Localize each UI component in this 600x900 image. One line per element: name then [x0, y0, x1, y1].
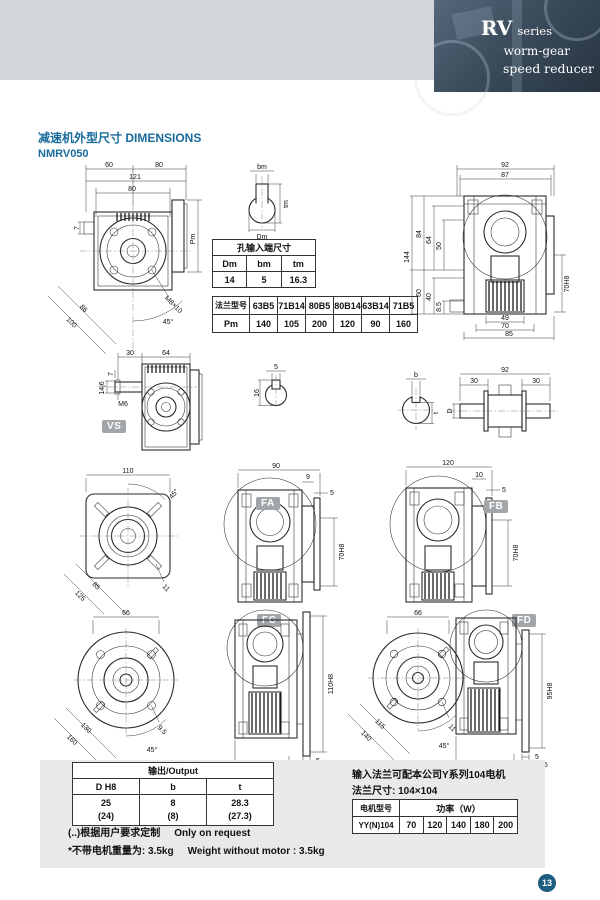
dim-label: 14j6 [99, 381, 106, 394]
output-value: 8 [140, 797, 206, 810]
bore-detail-drawing: bm tm Dm [228, 162, 294, 240]
dim-label: 64 [162, 350, 170, 357]
output-value-alt: (24) [73, 810, 139, 823]
page-title-dimensions: 减速机外型尺寸 DIMENSIONS [38, 131, 201, 147]
flange-pm-label: Pm [213, 315, 250, 333]
dim-label: 144 [404, 251, 411, 263]
double-shaft-drawing: 92 30 30 D [442, 365, 564, 445]
dim-label: 130 [79, 722, 92, 735]
dim-label: 70H8 [513, 545, 520, 562]
dim-label: bm [257, 164, 267, 171]
dim-label: 64 [426, 236, 433, 244]
dim-label: 9 [306, 474, 310, 481]
side-view-drawing: 92 87 144 84 64 50 60 40 8.5 70H8 [402, 160, 574, 342]
output-value-alt: (8) [140, 810, 206, 823]
flange-model: 63B14 [362, 297, 390, 315]
note-custom-zh: (..)根据用户要求定制 [68, 828, 160, 839]
fd-side-drawing: 95H8 5 14.5 72 [438, 604, 568, 776]
fb-side-drawing: 120 10 5 70H8 [384, 456, 529, 614]
flange-pm-value: 90 [362, 315, 390, 333]
dim-label: 110H8 [328, 674, 335, 694]
motor-power: 70 [400, 817, 424, 834]
dim-label: 11 [161, 583, 171, 593]
flange-model: 63B5 [250, 297, 278, 315]
motor-table: 电机型号 功率（W） YY(N)104 70 120 140 180 200 [352, 799, 518, 834]
dim-label: 120 [442, 460, 454, 467]
dim-label: 66 [414, 610, 422, 617]
dim-label: 60 [105, 162, 113, 169]
dim-label: 92 [501, 162, 509, 169]
note-weight-en: Weight without motor : 3.5kg [188, 846, 325, 857]
dim-label: 7 [108, 372, 115, 376]
note-weight: *不带电机重量为: 3.5kgWeight without motor : 3.… [68, 842, 325, 857]
tag-fb: FB [484, 500, 508, 513]
flange-model: 71B14 [278, 297, 306, 315]
output-value-cell: 28.3 (27.3) [207, 795, 274, 826]
front-view-drawing: 60 80 121 80 7 Pm 86 100 M8×10 45° [36, 160, 216, 356]
bore-table-title: 孔输入端尺寸 [213, 240, 316, 256]
flange-pm-value: 120 [334, 315, 362, 333]
dim-label: 45° [147, 746, 158, 754]
motor-power: 120 [423, 817, 447, 834]
fa-side-drawing: 90 9 5 70H8 [212, 460, 350, 612]
flange-row-label: 法兰型号 [213, 297, 250, 315]
photo-gear-shape [414, 40, 490, 116]
motor-power: 200 [494, 817, 518, 834]
key-detail-drawing: 5 16 [240, 363, 298, 415]
page-number-badge: 13 [538, 874, 556, 892]
note-custom-en: Only on request [174, 828, 250, 839]
header-photo: RV series worm-gear speed reducer [434, 0, 600, 92]
dim-label: 110 [122, 468, 133, 475]
dim-label: 87 [501, 172, 509, 179]
bore-col-header: Dm [213, 256, 247, 272]
dim-label: 10 [475, 472, 483, 479]
dim-label: 84 [416, 230, 423, 238]
note-custom: (..)根据用户要求定制Only on request [68, 824, 250, 839]
output-value: 28.3 [207, 797, 273, 810]
dim-label: 16 [254, 389, 261, 397]
bore-col-header: tm [281, 256, 315, 272]
motor-power: 180 [470, 817, 494, 834]
series-title-line1: RV series [481, 14, 596, 43]
dim-label: t [433, 412, 440, 414]
dim-label: 125 [73, 590, 86, 603]
dim-label: M8×10 [163, 295, 183, 315]
dim-label: 70H8 [339, 544, 346, 561]
tag-vs: VS [102, 420, 126, 433]
dim-label: 121 [129, 174, 141, 181]
dim-label: b [414, 372, 418, 379]
motor-model-header: 电机型号 [353, 800, 400, 817]
series-title-line2: worm-gear [481, 43, 596, 60]
motor-power: 140 [447, 817, 471, 834]
dim-label: 115 [373, 718, 386, 731]
dim-label: 90 [272, 463, 280, 470]
dim-label: 49 [501, 315, 509, 322]
note-weight-zh: *不带电机重量为: 3.5kg [68, 846, 174, 857]
output-value-cell: 8 (8) [140, 795, 207, 826]
dim-label: 92 [501, 367, 509, 374]
motor-model: YY(N)104 [353, 817, 400, 834]
tag-fa: FA [256, 497, 280, 510]
bore-value: 16.3 [281, 272, 315, 288]
dim-label: 70 [501, 323, 509, 330]
page-title-model: NMRV050 [38, 147, 201, 161]
flange-pm-value: 140 [250, 315, 278, 333]
dim-label: 95H8 [547, 683, 554, 700]
dim-label: 8.5 [436, 302, 443, 312]
bore-value: 5 [247, 272, 281, 288]
series-title: RV series worm-gear speed reducer [481, 14, 596, 79]
flange-table: 法兰型号 63B5 71B14 80B5 80B14 63B14 71B5 Pm… [212, 296, 418, 333]
vs-view-drawing: 30 64 7 14j6 M6 [85, 348, 213, 462]
flange-pm-value: 105 [278, 315, 306, 333]
fc-front-drawing: 66 130 160 9.5 45° [48, 606, 213, 771]
dim-label: 40 [426, 293, 433, 301]
dim-label: 30 [126, 350, 134, 357]
flange-model: 80B14 [334, 297, 362, 315]
dim-label: tm [283, 200, 290, 208]
dim-label: M6 [118, 401, 128, 408]
output-table: 输出/Output D H8 b t 25 (24) 8 (8) 28.3 (2… [72, 762, 274, 826]
flange-model: 80B5 [306, 297, 334, 315]
dim-label: 5 [330, 490, 334, 497]
dim-label: 30 [532, 378, 540, 385]
catalog-page: RV series worm-gear speed reducer 减速机外型尺… [0, 0, 600, 900]
page-title: 减速机外型尺寸 DIMENSIONS NMRV050 [38, 131, 201, 161]
header-gray-banner [0, 0, 434, 80]
dim-label: Pm [190, 234, 197, 245]
dim-label: 7 [74, 226, 81, 230]
dim-label: 140 [359, 730, 372, 743]
dim-label: 66 [122, 610, 130, 617]
dim-label: 80 [128, 186, 136, 193]
fc-side-drawing: 110H8 5 10 89 [215, 604, 347, 776]
flange-pm-value: 200 [306, 315, 334, 333]
bore-value: 14 [213, 272, 247, 288]
bore-dimensions-table: 孔输入端尺寸 Dm bm tm 14 5 16.3 [212, 239, 316, 288]
dim-label: 70H8 [564, 276, 571, 293]
output-col-header: t [207, 779, 274, 795]
motor-power-header: 功率（W） [400, 800, 518, 817]
dim-label: 5 [274, 364, 278, 371]
bore-col-header: bm [247, 256, 281, 272]
dim-label: 160 [65, 734, 78, 747]
output-table-title: 输出/Output [73, 763, 274, 779]
rv-logo-text: RV [481, 16, 512, 40]
fa-front-drawing: 110 45° 85 125 11 [56, 464, 208, 614]
motor-flange-size: 法兰尺寸: 104×104 [352, 782, 437, 797]
motor-info-line1: 输入法兰可配本公司Y系列104电机 [352, 766, 505, 781]
shaft-section-drawing: b t [394, 370, 438, 440]
output-col-header: b [140, 779, 207, 795]
series-title-line3: speed reducer [481, 60, 596, 78]
dim-label: 60 [416, 289, 423, 297]
dim-label: 80 [155, 162, 163, 169]
dim-label: 5 [502, 487, 506, 494]
dim-label: 30 [470, 378, 478, 385]
dim-label: 45° [163, 318, 174, 326]
dim-label: 85 [90, 581, 101, 592]
output-value: 25 [73, 797, 139, 810]
output-value-alt: (27.3) [207, 810, 273, 823]
output-value-cell: 25 (24) [73, 795, 140, 826]
dim-label: 100 [64, 316, 77, 329]
dim-label: 86 [78, 304, 89, 315]
output-col-header: D H8 [73, 779, 140, 795]
dim-label: 50 [436, 242, 443, 250]
dim-label: 85 [505, 331, 513, 338]
